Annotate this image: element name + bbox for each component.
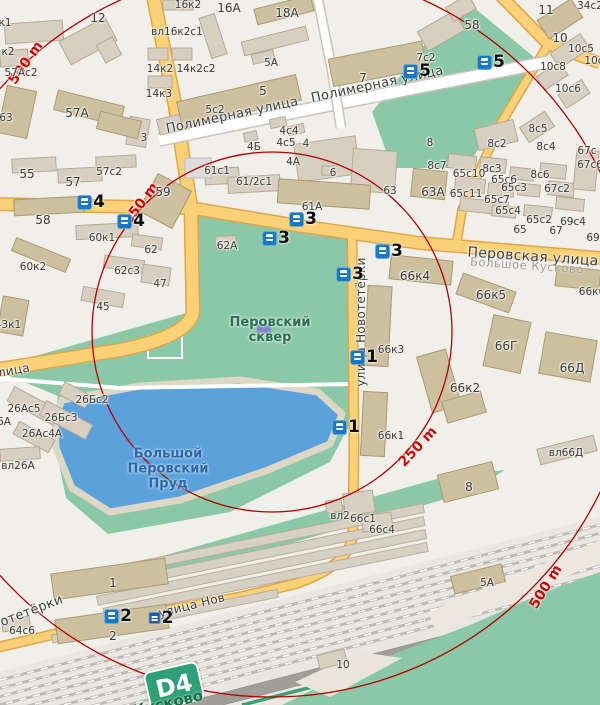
stop-number: 2 bbox=[162, 608, 174, 628]
building-number: 61/2с1 bbox=[236, 176, 272, 188]
building-number: 67с2 bbox=[544, 183, 570, 195]
stop-number: 3 bbox=[352, 264, 364, 284]
building-number: 5с2 bbox=[205, 104, 224, 116]
building-number: 5 bbox=[259, 85, 267, 99]
stop-number: 4 bbox=[93, 192, 105, 212]
building-number: 65с3 bbox=[501, 182, 527, 194]
building-number: 58 bbox=[35, 214, 50, 228]
building-number: 65с11 bbox=[450, 188, 483, 200]
street-name: Перовская улица bbox=[467, 244, 599, 269]
building-number: 69с4 bbox=[560, 216, 586, 228]
building-number: 60к1 bbox=[89, 232, 115, 244]
street-name: отетёрки bbox=[0, 593, 66, 631]
radius-label: 500 m bbox=[5, 38, 46, 87]
building-number: 16А bbox=[217, 2, 240, 16]
building-number: 8 bbox=[427, 137, 434, 149]
building-number: 11 bbox=[538, 4, 553, 18]
building-number: 6 bbox=[330, 167, 337, 179]
building-number: 63 bbox=[0, 112, 13, 124]
stop-number: 3 bbox=[305, 209, 317, 229]
building-number: к2 bbox=[1, 46, 14, 58]
building-number: 62 bbox=[144, 244, 157, 256]
building-number: вл26А bbox=[1, 460, 34, 472]
transit-stop-1[interactable]: 1 bbox=[332, 417, 360, 437]
building-number: 69 bbox=[586, 232, 599, 244]
label-layer: 500 m250 m250 m500 mПолимерная улица Пол… bbox=[0, 0, 600, 705]
station-icon bbox=[149, 612, 161, 624]
building-number: 66Д bbox=[560, 362, 585, 376]
building-number: 26Бс2 bbox=[75, 394, 108, 406]
building-number: 64с6 bbox=[9, 625, 35, 637]
building-number: 16к2 bbox=[175, 0, 201, 11]
building-number: 67 bbox=[549, 225, 562, 237]
stop-number: 5 bbox=[493, 52, 505, 72]
building-number: 55 bbox=[19, 168, 34, 182]
building-number: 4Б bbox=[247, 141, 261, 153]
radius-label: 500 m bbox=[526, 562, 565, 612]
building-number: 26Бс3 bbox=[44, 412, 77, 424]
building-number: 60к2 bbox=[20, 261, 46, 273]
building-number: 3 bbox=[141, 132, 148, 144]
building-number: вл2 bbox=[330, 510, 350, 522]
building-number: 43к1 bbox=[0, 319, 21, 331]
building-number: 10 bbox=[552, 32, 567, 46]
building-number: 8 bbox=[465, 481, 473, 495]
transit-stop-3[interactable]: 3 bbox=[289, 209, 317, 229]
building-number: 61с1 bbox=[204, 165, 230, 177]
area-name: Перовский сквер bbox=[230, 316, 311, 346]
bus-icon bbox=[117, 214, 132, 229]
building-number: 4 bbox=[303, 138, 310, 150]
building-number: 5А bbox=[480, 577, 494, 589]
stop-number: 4 bbox=[133, 211, 145, 231]
building-number: 34с2 bbox=[577, 0, 600, 12]
transit-stop-3[interactable]: 3 bbox=[336, 264, 364, 284]
building-number: 65с2 bbox=[526, 214, 552, 226]
transit-stop-4[interactable]: 4 bbox=[77, 192, 105, 212]
building-number: вл66Д bbox=[549, 447, 583, 459]
transit-stop-1[interactable]: 1 bbox=[350, 347, 378, 367]
stop-number: 2 bbox=[120, 606, 132, 626]
transit-stop-2[interactable]: 2 bbox=[104, 606, 132, 626]
building-number: 66с1 bbox=[350, 513, 376, 525]
building-number: 57с2 bbox=[96, 166, 122, 178]
bus-icon bbox=[332, 420, 347, 435]
building-number: 4с5 bbox=[276, 137, 295, 149]
building-number: 10с6 bbox=[555, 83, 581, 95]
building-number: 66Г bbox=[495, 340, 518, 354]
building-number: 58 bbox=[464, 19, 479, 33]
building-number: 14к2с2 bbox=[177, 63, 216, 75]
transit-stop-3[interactable]: 3 bbox=[262, 228, 290, 248]
building-number: к1 bbox=[0, 17, 12, 29]
transit-stop-2[interactable]: 2 bbox=[149, 608, 174, 628]
building-number: 1 bbox=[109, 577, 117, 591]
transit-stop-3[interactable]: 3 bbox=[375, 241, 403, 261]
building-number: 65 bbox=[513, 224, 526, 236]
building-number: 12 bbox=[90, 12, 105, 26]
building-number: 47 bbox=[153, 278, 166, 290]
building-number: 66к6 bbox=[579, 286, 600, 298]
building-number: 26Ас4А bbox=[22, 428, 62, 440]
area-name: Большое Кусково bbox=[470, 255, 585, 276]
building-number: 59 bbox=[155, 186, 170, 200]
building-number: 67с bbox=[577, 145, 596, 157]
stop-number: 5 bbox=[419, 61, 431, 81]
building-number: 65с7 bbox=[484, 194, 510, 206]
building-number: 14к3 bbox=[146, 88, 172, 100]
stop-number: 1 bbox=[366, 347, 378, 367]
building-number: 2 bbox=[109, 630, 117, 644]
building-number: 63А bbox=[421, 186, 444, 200]
building-number: 66к1 bbox=[378, 430, 404, 442]
building-number: 62с3 bbox=[114, 265, 140, 277]
area-name: Большой Перовский Пруд bbox=[128, 448, 209, 493]
building-number: 8с7 bbox=[427, 160, 446, 172]
map-canvas[interactable]: 500 m250 m250 m500 mПолимерная улица Пол… bbox=[0, 0, 600, 705]
transit-stop-5[interactable]: 5 bbox=[403, 61, 431, 81]
building-number: 10с5 bbox=[568, 43, 594, 55]
radius-label: 250 m bbox=[396, 424, 441, 471]
building-number: 14к2 bbox=[147, 63, 173, 75]
building-number: 57А bbox=[65, 107, 88, 121]
bus-icon bbox=[375, 244, 390, 259]
stop-number: 3 bbox=[278, 228, 290, 248]
building-number: 5А bbox=[264, 57, 278, 69]
building-number: 8с2 bbox=[487, 138, 506, 150]
building-number: 65с6 bbox=[491, 174, 517, 186]
building-number: 8с5 bbox=[528, 123, 547, 135]
building-number: 10 bbox=[336, 659, 349, 671]
building-number: 10с8 bbox=[540, 61, 566, 73]
transit-stop-5[interactable]: 5 bbox=[477, 52, 505, 72]
transit-stop-4[interactable]: 4 bbox=[117, 211, 145, 231]
building-number: 57 bbox=[65, 176, 80, 190]
building-number: 7 bbox=[359, 72, 367, 86]
bus-icon bbox=[403, 64, 418, 79]
building-number: 62А bbox=[217, 240, 238, 252]
building-number: 45 bbox=[96, 301, 109, 313]
bus-icon bbox=[289, 212, 304, 227]
building-number: 8с6 bbox=[530, 169, 549, 181]
bus-icon bbox=[350, 350, 365, 365]
building-number: 8с3 bbox=[482, 163, 501, 175]
street-name: лица bbox=[0, 361, 31, 380]
building-number: 66к3 bbox=[378, 344, 404, 356]
bus-icon bbox=[262, 231, 277, 246]
bus-icon bbox=[477, 55, 492, 70]
building-number: 63 bbox=[383, 185, 396, 197]
building-number: 66с4 bbox=[369, 524, 395, 536]
building-number: 65с4 bbox=[495, 205, 521, 217]
building-number: 26Ас5 bbox=[8, 403, 41, 415]
bus-icon bbox=[77, 195, 92, 210]
building-number: 6А bbox=[0, 416, 11, 428]
bus-icon bbox=[336, 267, 351, 282]
building-number: 4с4 bbox=[279, 125, 298, 137]
building-number: вл16к2с1 bbox=[151, 26, 203, 38]
stop-number: 1 bbox=[348, 417, 360, 437]
building-number: 66к4 bbox=[400, 270, 430, 284]
building-number: 8с4 bbox=[536, 141, 555, 153]
building-number: 18А bbox=[275, 7, 298, 21]
building-number: 66к2 bbox=[450, 382, 480, 396]
building-number: 4А bbox=[286, 156, 300, 168]
building-number: 65с10 bbox=[453, 168, 486, 180]
building-number: 66к5 bbox=[476, 289, 506, 303]
building-number: 67с6 bbox=[577, 159, 600, 171]
building-number: 10с bbox=[584, 55, 600, 67]
building-number: 57Ас2 bbox=[5, 67, 38, 79]
bus-icon bbox=[104, 609, 119, 624]
stop-number: 3 bbox=[391, 241, 403, 261]
